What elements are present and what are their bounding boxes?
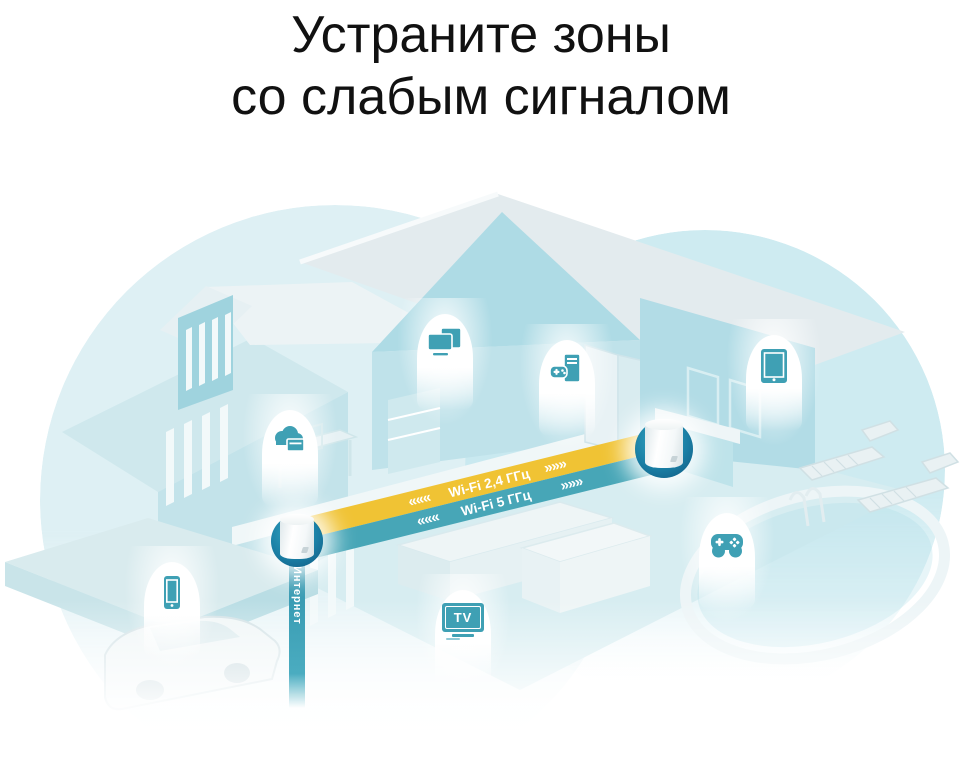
- device-pin-tv: TV: [435, 590, 491, 686]
- smartphone-icon: [154, 575, 190, 611]
- device-pin-gamepad: [699, 513, 755, 609]
- mesh-router-cylinder-icon: [645, 420, 683, 468]
- right-arrows-icon: »»»: [559, 472, 584, 494]
- left-arrows-icon: «««: [406, 488, 431, 510]
- internet-label: Интернет: [291, 566, 303, 625]
- marketing-banner: Устраните зоны со слабым сигналом: [0, 0, 962, 770]
- cloud-storage-icon: [272, 423, 308, 459]
- gaming-pc-icon: [549, 353, 585, 389]
- mesh-unit-main: [271, 515, 323, 567]
- mesh-unit-satellite: [635, 420, 693, 478]
- mesh-router-cylinder-icon: [280, 515, 314, 559]
- tv-label: TV: [445, 606, 481, 629]
- right-arrows-icon: »»»: [542, 455, 567, 477]
- gamepad-icon: [709, 526, 745, 562]
- device-pin-computer: [417, 314, 473, 410]
- tv-icon: TV: [442, 603, 484, 647]
- device-pin-smartphone: [144, 562, 200, 658]
- device-pin-tablet: [746, 335, 802, 431]
- computer-monitor-icon: [427, 327, 463, 363]
- left-arrows-icon: «««: [415, 508, 440, 530]
- device-pin-gaming-pc: [539, 340, 595, 436]
- device-pin-cloud-storage: [262, 410, 318, 506]
- house-illustration: Интернет ««« Wi-Fi 2,4 ГГц »»» ««« Wi-Fi…: [0, 0, 962, 770]
- tablet-icon: [756, 348, 792, 384]
- internet-band: Интернет: [289, 552, 305, 708]
